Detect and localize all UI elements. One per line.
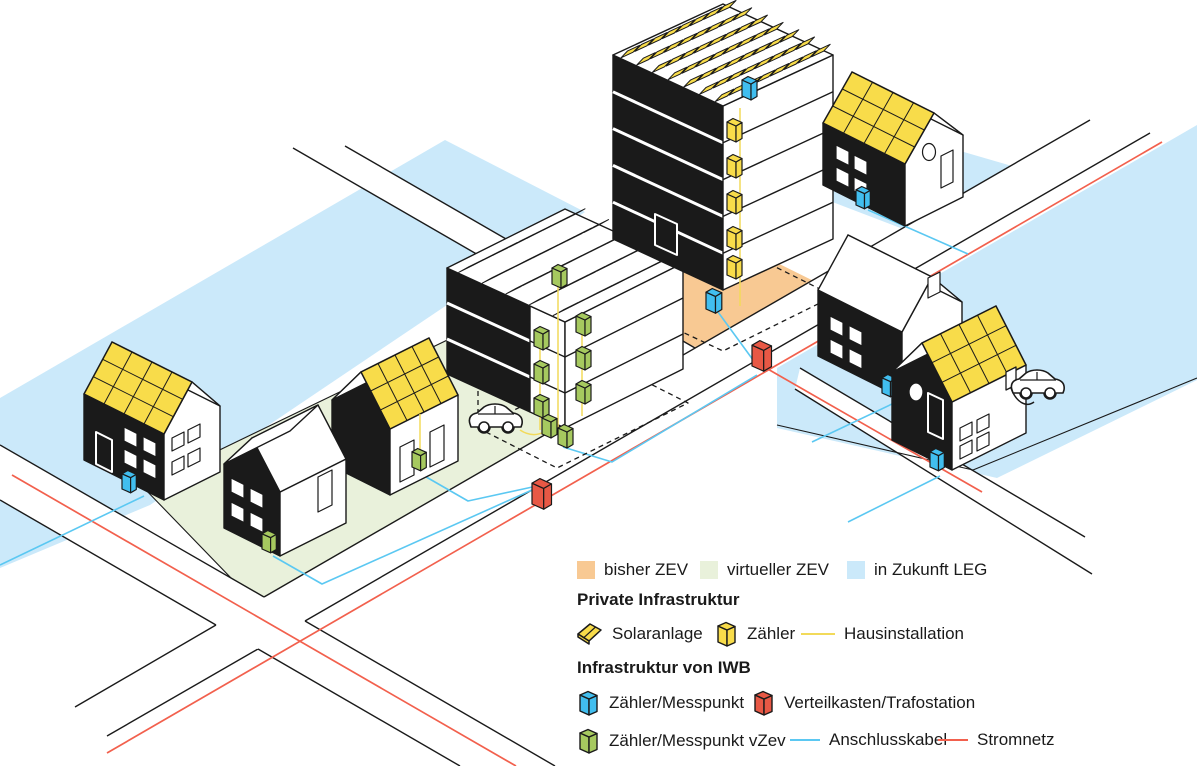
- blue-zone-swatch: [847, 561, 865, 579]
- meter-vzev-label: Zähler/Messpunkt vZev: [609, 731, 786, 750]
- zone-label: bisher ZEV: [604, 560, 688, 579]
- box-red-icon: [752, 686, 775, 718]
- hausinstallation-line-icon: [801, 633, 835, 635]
- legend-zaehler: Zähler: [715, 617, 795, 649]
- meter-messpunkt-label: Zähler/Messpunkt: [609, 693, 744, 712]
- solar-panel-icon: [576, 621, 603, 646]
- legend-zone-zukunft-leg: in Zukunft LEG: [847, 560, 987, 579]
- stromnetz-line-icon: [938, 739, 968, 741]
- legend-anschlusskabel: Anschlusskabel: [790, 730, 947, 749]
- hausinstallation-label: Hausinstallation: [844, 624, 964, 643]
- meter-label: Zähler: [747, 624, 795, 643]
- orange-zone-swatch: [577, 561, 595, 579]
- verteilkasten-label: Verteilkasten/Trafostation: [784, 693, 975, 712]
- legend-verteilkasten: Verteilkasten/Trafostation: [752, 686, 975, 718]
- solar-label: Solaranlage: [612, 624, 703, 643]
- private-infrastructure-heading: Private Infrastruktur: [577, 590, 740, 610]
- stromnetz-label: Stromnetz: [977, 730, 1054, 749]
- meter-green-icon: [577, 724, 600, 756]
- legend-zaehler-messpunkt: Zähler/Messpunkt: [577, 686, 744, 718]
- legend-zone-bisher-zev: bisher ZEV: [577, 560, 688, 579]
- iwb-infrastructure-heading: Infrastruktur von IWB: [577, 658, 751, 678]
- green-zone-swatch: [700, 561, 718, 579]
- anschlusskabel-label: Anschlusskabel: [829, 730, 947, 749]
- legend-solaranlage: Solaranlage: [576, 621, 703, 646]
- legend-hausinstallation: Hausinstallation: [801, 624, 964, 643]
- meter-blue-icon: [577, 686, 600, 718]
- legend-zaehler-vzev: Zähler/Messpunkt vZev: [577, 724, 786, 756]
- energy-community-illustration: [0, 0, 1197, 766]
- isometric-scene: [0, 0, 1197, 766]
- zone-label: in Zukunft LEG: [874, 560, 987, 579]
- meter-yellow-icon: [715, 617, 738, 649]
- anschlusskabel-line-icon: [790, 739, 820, 741]
- tower-building: [613, 1, 833, 291]
- legend-stromnetz: Stromnetz: [938, 730, 1054, 749]
- legend-zone-virtueller-zev: virtueller ZEV: [700, 560, 829, 579]
- zone-label: virtueller ZEV: [727, 560, 829, 579]
